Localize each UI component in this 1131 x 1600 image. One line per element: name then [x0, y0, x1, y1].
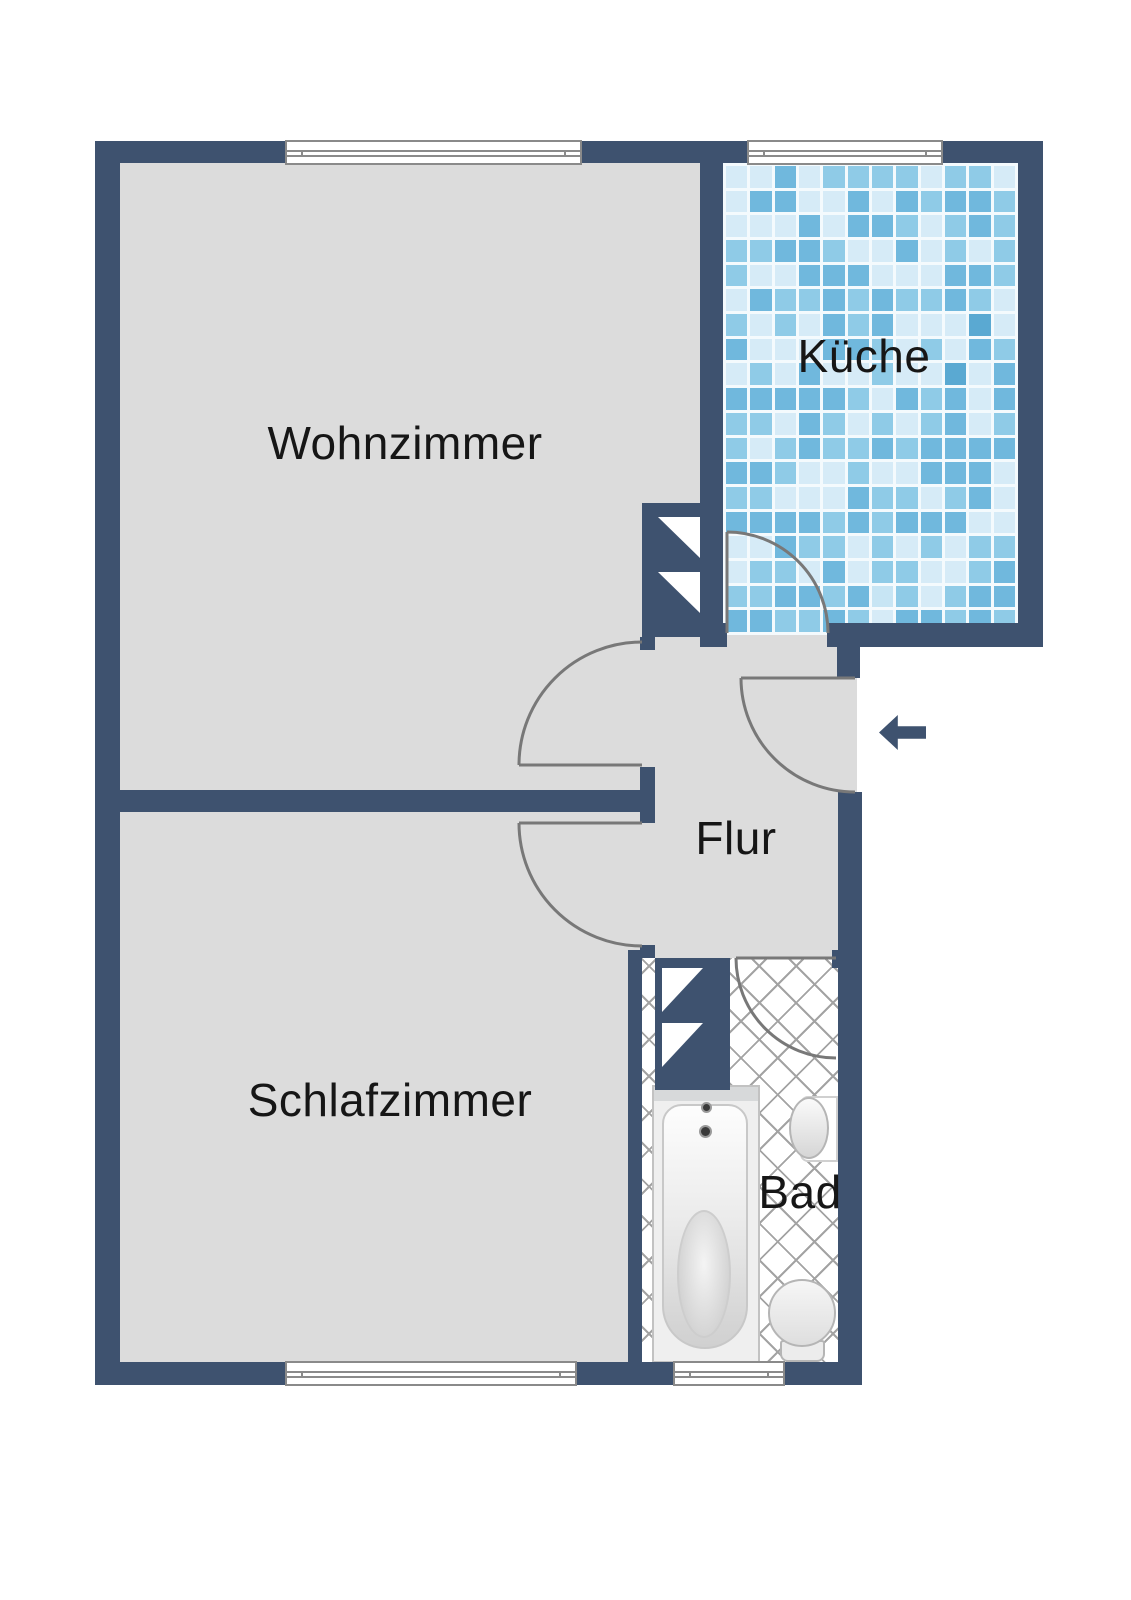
kitchen-tile — [750, 512, 771, 534]
kitchen-tile — [750, 610, 771, 632]
kitchen-tile — [726, 610, 747, 632]
kitchen-tile — [799, 191, 820, 213]
kitchen-tile — [896, 289, 917, 311]
kitchen-tile — [726, 363, 747, 385]
kitchen-tile — [945, 561, 966, 583]
kitchen-tile — [726, 191, 747, 213]
kitchen-tile — [775, 289, 796, 311]
kitchen-tile — [799, 265, 820, 287]
kitchen-tile — [994, 462, 1015, 484]
kitchen-tile — [848, 265, 869, 287]
kitchen-tile — [921, 166, 942, 188]
window-schlafzimmer — [285, 1361, 577, 1386]
kitchen-tile — [969, 215, 990, 237]
kitchen-tile — [945, 363, 966, 385]
kitchen-tile — [775, 265, 796, 287]
kitchen-tile — [775, 215, 796, 237]
kitchen-tile — [872, 289, 893, 311]
kitchen-tile — [994, 265, 1015, 287]
kitchen-tile — [994, 339, 1015, 361]
kitchen-tile — [969, 438, 990, 460]
wall-schlafzimmer-door-jamb — [640, 945, 655, 958]
wall-schlafzimmer-bad-divider — [628, 950, 642, 1362]
kitchen-tile — [969, 536, 990, 558]
kitchen-tile — [921, 240, 942, 262]
wall-kitchen-bottom — [827, 623, 1043, 647]
kitchen-tile — [896, 413, 917, 435]
kitchen-tile — [750, 561, 771, 583]
kitchen-tile — [969, 586, 990, 608]
kitchen-tile — [775, 512, 796, 534]
kitchen-tile — [848, 512, 869, 534]
kitchen-tile — [896, 215, 917, 237]
kitchen-tile — [872, 240, 893, 262]
sink-basin — [789, 1097, 829, 1159]
kitchen-tile — [775, 561, 796, 583]
wall-bad-door-jamb — [832, 950, 840, 968]
kitchen-tile — [848, 586, 869, 608]
kitchen-tile — [994, 438, 1015, 460]
kitchen-tile — [848, 240, 869, 262]
kitchen-tile — [726, 512, 747, 534]
kitchen-tile — [799, 215, 820, 237]
kitchen-tile — [945, 191, 966, 213]
kitchen-tile — [848, 438, 869, 460]
kitchen-tile — [994, 388, 1015, 410]
toilet-bowl — [768, 1279, 836, 1347]
kitchen-tile — [872, 462, 893, 484]
kitchen-tile — [750, 191, 771, 213]
kitchen-tile — [848, 191, 869, 213]
kitchen-tile — [726, 438, 747, 460]
kitchen-tile — [848, 388, 869, 410]
kitchen-tile — [750, 240, 771, 262]
kitchen-tile — [945, 240, 966, 262]
kitchen-tile — [969, 240, 990, 262]
kitchen-tile — [726, 166, 747, 188]
kitchen-tile — [775, 339, 796, 361]
kitchen-tile — [994, 512, 1015, 534]
kitchen-tile — [726, 265, 747, 287]
kitchen-tile — [775, 438, 796, 460]
kitchen-tile — [872, 388, 893, 410]
kitchen-tile — [921, 536, 942, 558]
kitchen-tile — [969, 314, 990, 336]
kitchen-tile — [872, 487, 893, 509]
kitchen-tile — [896, 512, 917, 534]
kitchen-tile — [799, 413, 820, 435]
kitchen-tile — [775, 363, 796, 385]
kitchen-tile — [945, 289, 966, 311]
kitchen-tile — [823, 240, 844, 262]
kitchen-tile — [921, 215, 942, 237]
kitchen-tile — [775, 487, 796, 509]
kitchen-tile — [750, 289, 771, 311]
window-bad — [673, 1361, 785, 1386]
kitchen-tile — [750, 536, 771, 558]
kitchen-tile — [896, 438, 917, 460]
kitchen-tile — [726, 388, 747, 410]
kitchen-tile — [823, 413, 844, 435]
kitchen-tile — [775, 314, 796, 336]
kitchen-tile — [726, 487, 747, 509]
kitchen-tile — [945, 314, 966, 336]
kitchen-tile — [823, 289, 844, 311]
kitchen-tile — [799, 388, 820, 410]
kitchen-tile — [775, 536, 796, 558]
wall-mid-divider — [120, 790, 640, 812]
kitchen-tile — [994, 413, 1015, 435]
kitchen-tile — [921, 462, 942, 484]
kitchen-tile — [969, 289, 990, 311]
kitchen-tile — [994, 363, 1015, 385]
kitchen-tile — [896, 191, 917, 213]
bathtub-drain-dot — [699, 1125, 712, 1138]
kitchen-tile — [945, 215, 966, 237]
kitchen-tile — [823, 215, 844, 237]
bathtub-faucet-dot — [701, 1102, 712, 1113]
kitchen-tile — [969, 487, 990, 509]
kitchen-tile — [823, 462, 844, 484]
kitchen-tile — [896, 265, 917, 287]
kitchen-tile — [994, 240, 1015, 262]
kitchen-tile — [872, 413, 893, 435]
kitchen-tile — [945, 265, 966, 287]
kitchen-tile — [969, 413, 990, 435]
kitchen-tile — [945, 166, 966, 188]
kitchen-tile — [872, 438, 893, 460]
kitchen-tile — [945, 462, 966, 484]
wall-mid-divider-stub — [640, 767, 655, 823]
kitchen-tile — [799, 610, 820, 632]
room-label-kueche: Küche — [798, 329, 931, 383]
kitchen-tile — [750, 586, 771, 608]
kueche-floor — [723, 163, 1018, 635]
kitchen-tile — [994, 487, 1015, 509]
kitchen-tile — [896, 536, 917, 558]
kitchen-tile — [726, 289, 747, 311]
kitchen-tile — [799, 536, 820, 558]
kitchen-tile — [921, 265, 942, 287]
room-label-bad: Bad — [758, 1165, 841, 1219]
kitchen-tile — [799, 561, 820, 583]
room-label-schlafzimmer: Schlafzimmer — [248, 1073, 533, 1127]
kitchen-tile — [848, 561, 869, 583]
kitchen-tile — [994, 536, 1015, 558]
kitchen-tile — [823, 561, 844, 583]
kitchen-tile — [799, 487, 820, 509]
kitchen-tile — [726, 215, 747, 237]
kitchen-tile — [872, 191, 893, 213]
kitchen-tile — [775, 413, 796, 435]
bathtub-basin — [662, 1104, 748, 1349]
kitchen-tile — [848, 462, 869, 484]
wall-entry-jamb — [837, 647, 860, 678]
kitchen-tile — [799, 512, 820, 534]
kitchen-tile — [896, 462, 917, 484]
kitchen-tile — [872, 166, 893, 188]
kitchen-tile — [823, 487, 844, 509]
kitchen-tile — [994, 191, 1015, 213]
kitchen-tile — [872, 586, 893, 608]
kitchen-tile — [945, 339, 966, 361]
kitchen-tile — [921, 413, 942, 435]
kitchen-tile — [750, 388, 771, 410]
kitchen-tile — [750, 438, 771, 460]
kitchen-tile — [896, 388, 917, 410]
wall-right-lower — [838, 792, 862, 1385]
kitchen-tile — [823, 388, 844, 410]
kitchen-tile — [775, 240, 796, 262]
kitchen-tile — [799, 438, 820, 460]
kitchen-tile — [848, 487, 869, 509]
wall-bad-shaft-side — [718, 958, 730, 1090]
kitchen-tile — [775, 610, 796, 632]
kitchen-tile — [823, 512, 844, 534]
kitchen-tile — [872, 512, 893, 534]
kitchen-tile — [750, 462, 771, 484]
kitchen-tile — [994, 314, 1015, 336]
wall-wohnzimmer-door-jamb — [640, 637, 655, 650]
floorplan-canvas: Wohnzimmer Küche Flur Schlafzimmer Bad — [0, 0, 1131, 1600]
kitchen-tile — [921, 289, 942, 311]
window-kueche — [747, 140, 943, 165]
kitchen-tile — [921, 512, 942, 534]
kitchen-tile — [994, 215, 1015, 237]
kitchen-tile — [945, 413, 966, 435]
kitchen-tile — [994, 561, 1015, 583]
kitchen-tile — [969, 166, 990, 188]
bathtub-deep-end — [677, 1210, 731, 1338]
kitchen-tile — [896, 561, 917, 583]
kitchen-tile — [969, 512, 990, 534]
wall-left — [95, 141, 120, 1385]
kitchen-tile — [848, 166, 869, 188]
kitchen-tile — [750, 166, 771, 188]
kitchen-tile — [872, 536, 893, 558]
kitchen-tile — [799, 462, 820, 484]
kitchen-tile — [750, 413, 771, 435]
kitchen-tile — [726, 462, 747, 484]
kitchen-tile — [872, 215, 893, 237]
kitchen-tile — [921, 561, 942, 583]
kitchen-tile — [750, 265, 771, 287]
window-wohnzimmer — [285, 140, 582, 165]
kitchen-tile — [969, 363, 990, 385]
wall-kitchen-door-jamb — [700, 623, 727, 647]
kitchen-tile — [969, 339, 990, 361]
kitchen-tile — [848, 413, 869, 435]
kitchen-tile — [726, 339, 747, 361]
kitchen-tile — [994, 289, 1015, 311]
kitchen-tile — [848, 215, 869, 237]
kitchen-tile — [896, 240, 917, 262]
kitchen-tile — [848, 536, 869, 558]
kitchen-tile — [945, 388, 966, 410]
kitchen-tile — [945, 438, 966, 460]
kitchen-tile — [921, 438, 942, 460]
kitchen-tile — [799, 240, 820, 262]
arrow-left-icon — [879, 715, 926, 750]
kitchen-tile — [823, 536, 844, 558]
kitchen-tile — [750, 487, 771, 509]
kitchen-tile — [994, 166, 1015, 188]
kitchen-tile — [726, 413, 747, 435]
kitchen-tile — [872, 265, 893, 287]
kitchen-tile — [945, 586, 966, 608]
kitchen-tile — [896, 166, 917, 188]
kitchen-tile — [921, 586, 942, 608]
kitchen-tile — [969, 388, 990, 410]
kitchen-tile — [823, 438, 844, 460]
kitchen-tile — [750, 339, 771, 361]
kitchen-tile — [921, 191, 942, 213]
kitchen-tile — [969, 462, 990, 484]
kitchen-tile — [823, 166, 844, 188]
kitchen-tile — [823, 586, 844, 608]
kitchen-tile — [921, 487, 942, 509]
room-label-wohnzimmer: Wohnzimmer — [267, 416, 542, 470]
kitchen-tile — [823, 265, 844, 287]
kitchen-tile — [775, 388, 796, 410]
kitchen-tile — [896, 487, 917, 509]
kitchen-tile — [872, 561, 893, 583]
kitchen-tile — [799, 166, 820, 188]
kitchen-tile — [775, 191, 796, 213]
kitchen-tile — [848, 289, 869, 311]
wohnzimmer-floor — [120, 163, 700, 790]
kitchen-tile — [969, 265, 990, 287]
wall-right-kitchen — [1018, 141, 1043, 647]
kitchen-tile — [750, 215, 771, 237]
kitchen-tile — [969, 191, 990, 213]
kitchen-tile — [994, 586, 1015, 608]
room-label-flur: Flur — [695, 811, 776, 865]
kitchen-tile — [775, 586, 796, 608]
kitchen-tile — [750, 314, 771, 336]
kitchen-tile — [775, 166, 796, 188]
kitchen-tile — [726, 561, 747, 583]
kitchen-tile — [799, 586, 820, 608]
entry-doorway-floor — [838, 678, 857, 792]
wall-wohnzimmer-kueche-divider — [700, 141, 723, 503]
kitchen-tile — [726, 586, 747, 608]
kitchen-tile — [945, 487, 966, 509]
kitchen-tile — [726, 314, 747, 336]
kitchen-tile — [726, 240, 747, 262]
kitchen-tile — [969, 561, 990, 583]
kitchen-tile — [945, 536, 966, 558]
flur-floor — [642, 635, 838, 960]
kitchen-tile — [945, 512, 966, 534]
kitchen-tile — [896, 586, 917, 608]
kitchen-tile — [750, 363, 771, 385]
kitchen-tile — [823, 191, 844, 213]
kitchen-tile — [726, 536, 747, 558]
kitchen-tile — [799, 289, 820, 311]
kitchen-tile — [775, 462, 796, 484]
kitchen-tile — [921, 388, 942, 410]
